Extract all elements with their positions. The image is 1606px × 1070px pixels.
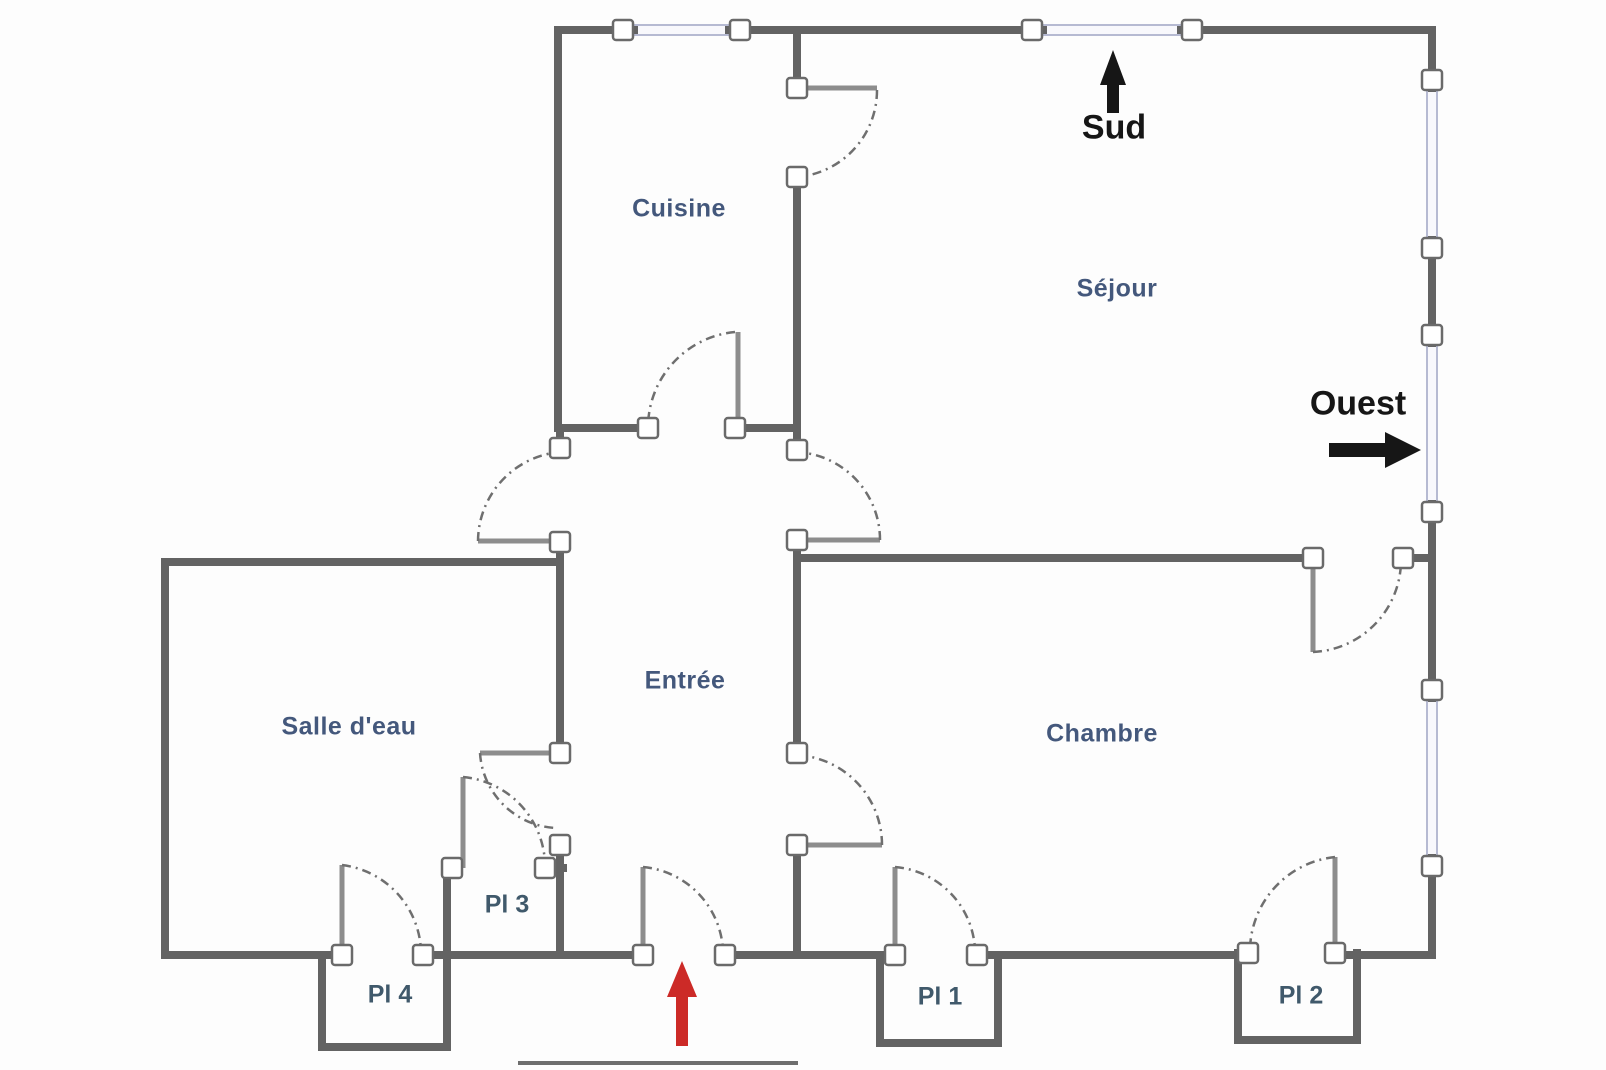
room-label-entree: Entrée bbox=[645, 667, 726, 696]
window bbox=[1427, 88, 1437, 240]
wall-junction bbox=[633, 945, 653, 965]
wall-junction bbox=[885, 945, 905, 965]
door-swing-arc bbox=[648, 332, 735, 428]
wall-junction bbox=[1422, 70, 1442, 90]
window bbox=[634, 25, 729, 35]
closet-label-pl3: Pl 3 bbox=[485, 891, 529, 920]
wall-junction bbox=[535, 858, 555, 878]
door-swing-arcs-layer bbox=[342, 90, 1401, 951]
door-swing-arc bbox=[797, 755, 882, 845]
wall-junction bbox=[1238, 943, 1258, 963]
wall-junction bbox=[1393, 548, 1413, 568]
door-swing-arc bbox=[1250, 857, 1335, 949]
door-swing-arc bbox=[895, 867, 975, 950]
wall-junction bbox=[787, 167, 807, 187]
door-swing-arc bbox=[478, 452, 560, 541]
wall-junction bbox=[715, 945, 735, 965]
closet-label-pl1: Pl 1 bbox=[918, 983, 962, 1012]
room-label-cuisine: Cuisine bbox=[632, 195, 726, 224]
wall-junction bbox=[730, 20, 750, 40]
wall-junction bbox=[967, 945, 987, 965]
wall-junctions-layer bbox=[332, 20, 1442, 965]
wall-junction bbox=[1325, 943, 1345, 963]
entrance-arrow-icon bbox=[667, 961, 697, 1046]
wall-junction bbox=[787, 78, 807, 98]
closet-label-pl2: Pl 2 bbox=[1279, 982, 1323, 1011]
window bbox=[1427, 698, 1437, 858]
door-swing-arc bbox=[463, 777, 545, 864]
wall-junction bbox=[613, 20, 633, 40]
wall-junction bbox=[787, 530, 807, 550]
window bbox=[1043, 25, 1181, 35]
floor-plan-drawing bbox=[0, 0, 1606, 1070]
door-swing-arc bbox=[342, 865, 421, 951]
wall-junction bbox=[1422, 502, 1442, 522]
windows-layer bbox=[634, 25, 1437, 858]
wall-junction bbox=[1022, 20, 1042, 40]
wall-junction bbox=[1422, 238, 1442, 258]
wall-junction bbox=[787, 743, 807, 763]
wall-junction bbox=[725, 418, 745, 438]
wall-junction bbox=[413, 945, 433, 965]
door-swing-arc bbox=[797, 452, 880, 540]
wall-junction bbox=[1422, 325, 1442, 345]
room-label-salle-eau: Salle d'eau bbox=[281, 713, 416, 742]
wall-junction bbox=[1422, 856, 1442, 876]
wall-junction bbox=[787, 440, 807, 460]
door-swing-arc bbox=[480, 753, 556, 828]
south-arrow-icon bbox=[1100, 50, 1126, 113]
door-swing-arc bbox=[1313, 560, 1401, 652]
wall-junction bbox=[550, 438, 570, 458]
wall-junction bbox=[787, 835, 807, 855]
door-swing-arc bbox=[797, 90, 877, 177]
wall-junction bbox=[550, 532, 570, 552]
wall-junction bbox=[550, 743, 570, 763]
wall-junction bbox=[1182, 20, 1202, 40]
west-arrow-icon bbox=[1329, 432, 1421, 468]
wall-junction bbox=[638, 418, 658, 438]
compass-label-south: Sud bbox=[1082, 109, 1146, 148]
floor-plan: Cuisine Séjour Salle d'eau Entrée Chambr… bbox=[0, 0, 1606, 1070]
wall-junction bbox=[1422, 680, 1442, 700]
compass-label-west: Ouest bbox=[1310, 385, 1406, 424]
window bbox=[1427, 343, 1437, 504]
room-label-sejour: Séjour bbox=[1077, 275, 1158, 304]
door-leaves-layer bbox=[342, 88, 1335, 955]
wall-junction bbox=[442, 858, 462, 878]
closet-label-pl4: Pl 4 bbox=[368, 981, 412, 1010]
wall-junction bbox=[332, 945, 352, 965]
room-label-chambre: Chambre bbox=[1046, 720, 1158, 749]
door-swing-arc bbox=[643, 867, 723, 951]
wall-junction bbox=[1303, 548, 1323, 568]
wall-junction bbox=[550, 835, 570, 855]
